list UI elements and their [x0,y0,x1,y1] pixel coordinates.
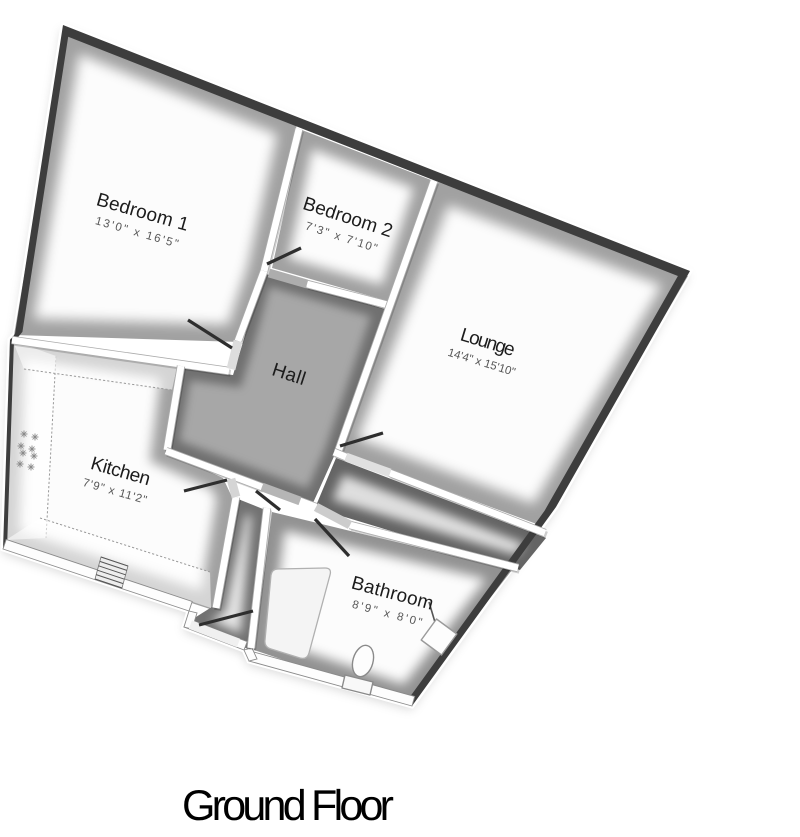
svg-text:Ground Floor: Ground Floor [182,782,394,830]
